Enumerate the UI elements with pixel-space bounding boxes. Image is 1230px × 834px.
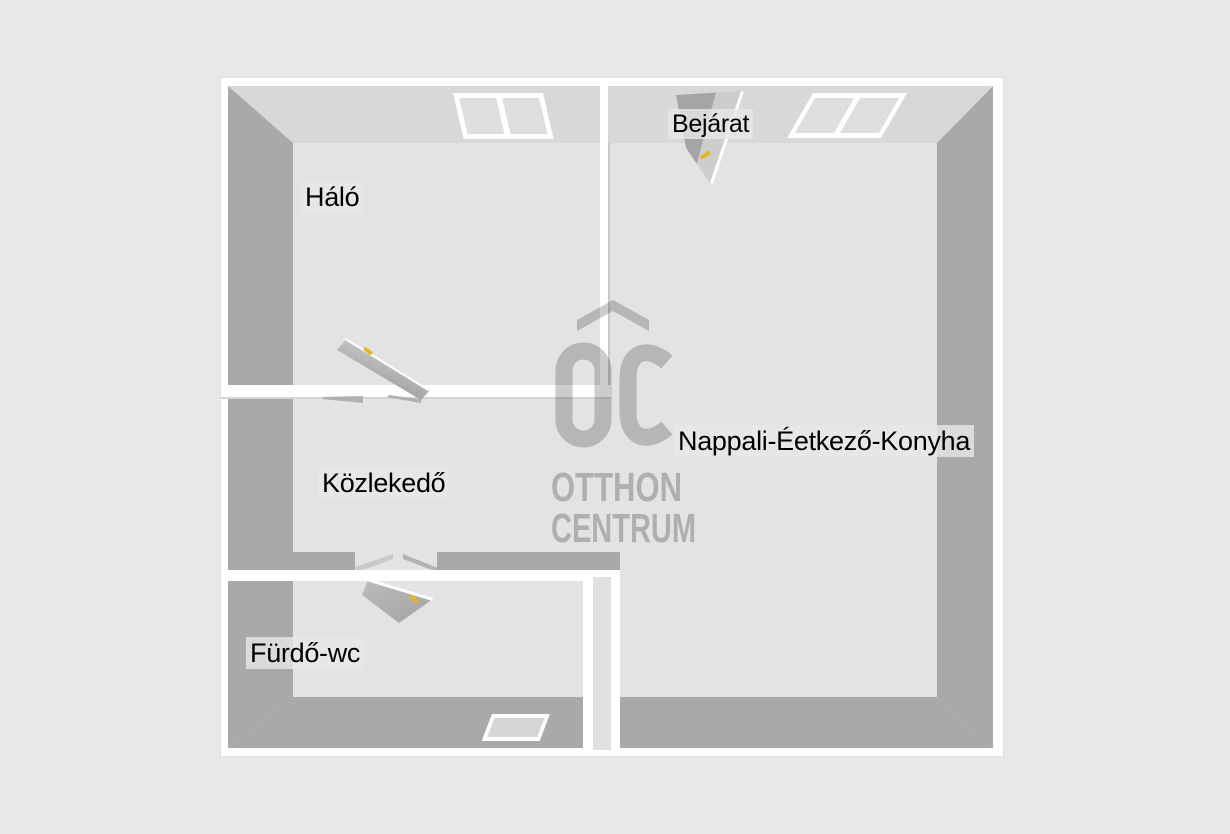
wall-halo-nappali <box>600 82 608 398</box>
room-label-furdo: Fürdő-wc <box>246 637 364 669</box>
wall-kozlekedo-furdo-face-left <box>228 552 355 572</box>
window-pane <box>487 718 544 737</box>
wall-furdo-nappali-top-face <box>593 577 611 750</box>
floor-plan-canvas: OTTHON CENTRUM Háló Bejárat Nappali-Éetk… <box>0 0 1230 834</box>
room-label-halo: Háló <box>301 181 363 213</box>
window-pane <box>459 98 504 134</box>
room-label-nappali: Nappali-Éetkező-Konyha <box>674 425 974 457</box>
window-icon-halo <box>453 93 554 139</box>
right-wall-face <box>937 86 993 748</box>
window-icon-furdo <box>482 714 550 741</box>
room-label-kozlekedo: Közlekedő <box>318 467 449 499</box>
wall-kozlekedo-furdo <box>221 570 620 581</box>
wall-halo-kozlekedo-shadow <box>221 397 611 399</box>
room-label-bejarat: Bejárat <box>668 109 753 139</box>
wall-halo-nappali-shadow <box>608 143 610 396</box>
window-pane <box>502 98 547 134</box>
wall-kozlekedo-furdo-face-right <box>437 552 620 572</box>
